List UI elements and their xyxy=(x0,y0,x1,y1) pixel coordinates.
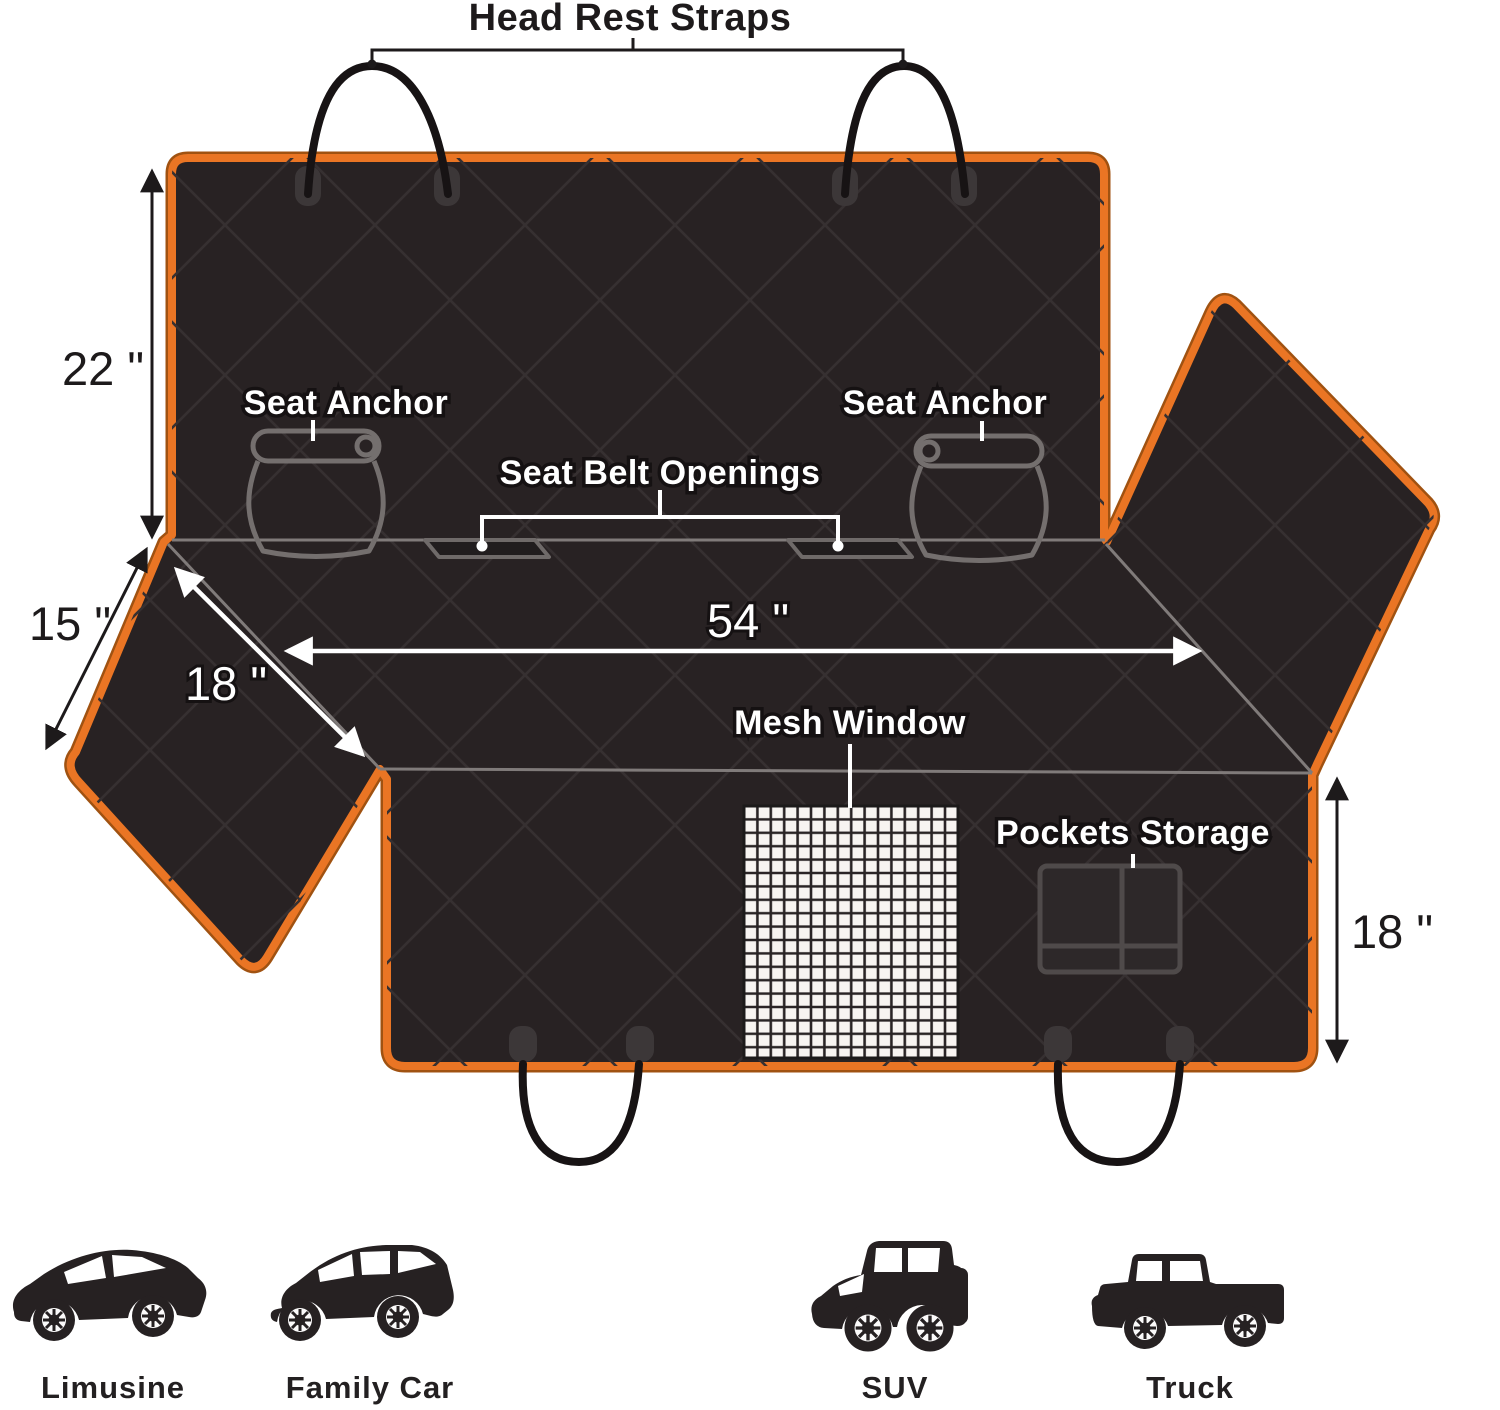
vehicle-limusine xyxy=(13,1250,206,1341)
dim-flap-side: 15 " xyxy=(29,597,111,650)
bracket-dot-right xyxy=(899,60,908,69)
vehicle-suv xyxy=(811,1241,968,1352)
bottom-strap-right xyxy=(1058,1064,1180,1162)
mesh-window-graphic xyxy=(744,806,958,1058)
bottom-strap-left xyxy=(523,1064,639,1162)
dim-seat-flap-depth: 18 " xyxy=(185,657,267,710)
label-pockets-storage: Pockets Storage xyxy=(996,814,1270,852)
vehicle-label-truck: Truck xyxy=(1146,1370,1234,1405)
suv-spare-tire xyxy=(950,1268,968,1324)
vehicle-truck xyxy=(1092,1254,1284,1349)
label-seat-anchor-right: Seat Anchor xyxy=(843,384,1048,422)
label-head-rest-straps: Head Rest Straps xyxy=(469,0,792,39)
vehicle-family-car xyxy=(271,1245,454,1341)
dim-seat-width: 54 " xyxy=(707,594,789,647)
dim-back-height: 22 " xyxy=(62,342,144,395)
vehicle-label-family-car: Family Car xyxy=(286,1370,455,1405)
seat-belt-opening-right xyxy=(788,540,912,557)
label-seat-belt-openings: Seat Belt Openings xyxy=(500,454,821,492)
vehicle-label-limusine: Limusine xyxy=(41,1370,185,1405)
belt-dot-left xyxy=(477,541,488,552)
label-mesh-window: Mesh Window xyxy=(734,704,966,742)
label-seat-anchor-left: Seat Anchor xyxy=(244,384,449,422)
dim-front-drop: 18 " xyxy=(1351,905,1433,958)
belt-dot-right xyxy=(833,541,844,552)
headrest-bracket xyxy=(372,38,903,62)
seat-belt-opening-left xyxy=(425,540,549,557)
bottom-straps xyxy=(523,1064,1180,1162)
vehicle-label-suv: SUV xyxy=(862,1370,929,1405)
product-diagram: Head Rest Straps Seat Anchor Seat Anchor… xyxy=(0,0,1500,1410)
bracket-dot-left xyxy=(368,60,377,69)
pocket-storage-graphic xyxy=(1040,866,1180,972)
